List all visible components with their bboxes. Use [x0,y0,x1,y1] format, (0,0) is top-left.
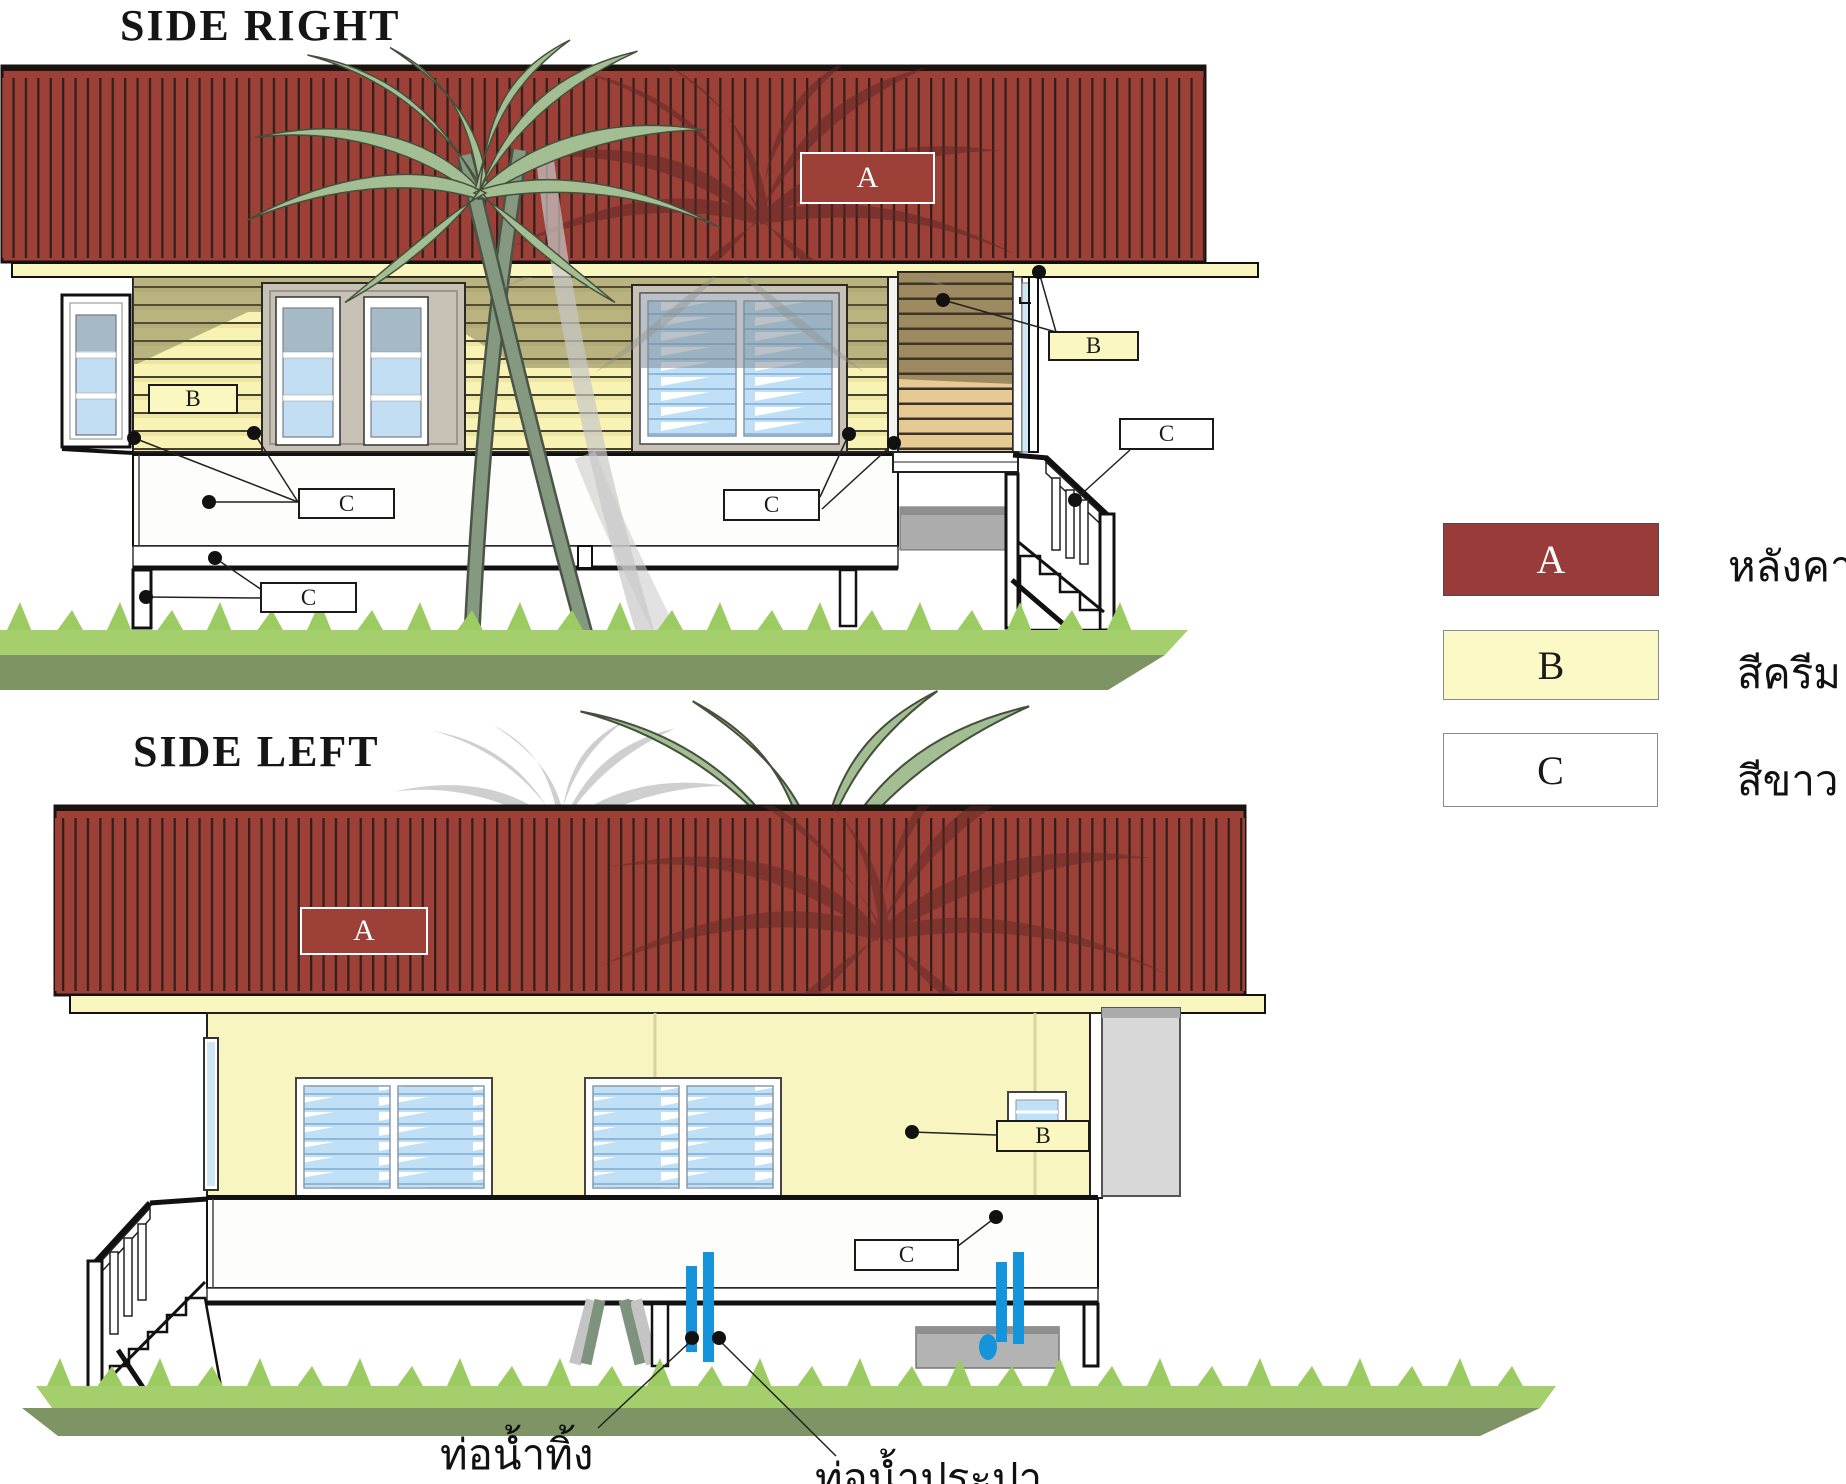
label-drain-pipe: ท่อน้ำทิ้ง [440,1422,593,1484]
marker-c-right-2: C [723,489,820,521]
legend-swatch-roof: A [1443,523,1659,596]
legend-label-cream: สีครีม [1737,641,1841,707]
legend-swatch-cream: B [1443,630,1659,700]
marker-a-roof-left: A [300,907,428,955]
marker-b-wall-right-1: B [148,384,238,414]
marker-b-wall-right-2: B [1048,331,1139,361]
elevation-sheet: SIDE RIGHT SIDE LEFT A B B C C C C A B C… [0,0,1846,1484]
marker-b-wall-left: B [996,1120,1090,1152]
label-water-supply-pipe: ท่อน้ำประปา [815,1446,1042,1484]
title-side-left: SIDE LEFT [133,726,380,777]
title-side-right: SIDE RIGHT [120,0,400,51]
legend-label-white: สีขาว [1737,748,1839,814]
marker-c-right-3: C [1119,418,1214,450]
marker-c-left: C [854,1239,959,1271]
legend-label-roof: หลังคา [1728,534,1846,600]
marker-c-right-1: C [298,488,395,519]
marker-c-right-4: C [260,582,357,613]
legend-swatch-white: C [1443,733,1658,807]
marker-a-roof-right: A [800,152,935,204]
